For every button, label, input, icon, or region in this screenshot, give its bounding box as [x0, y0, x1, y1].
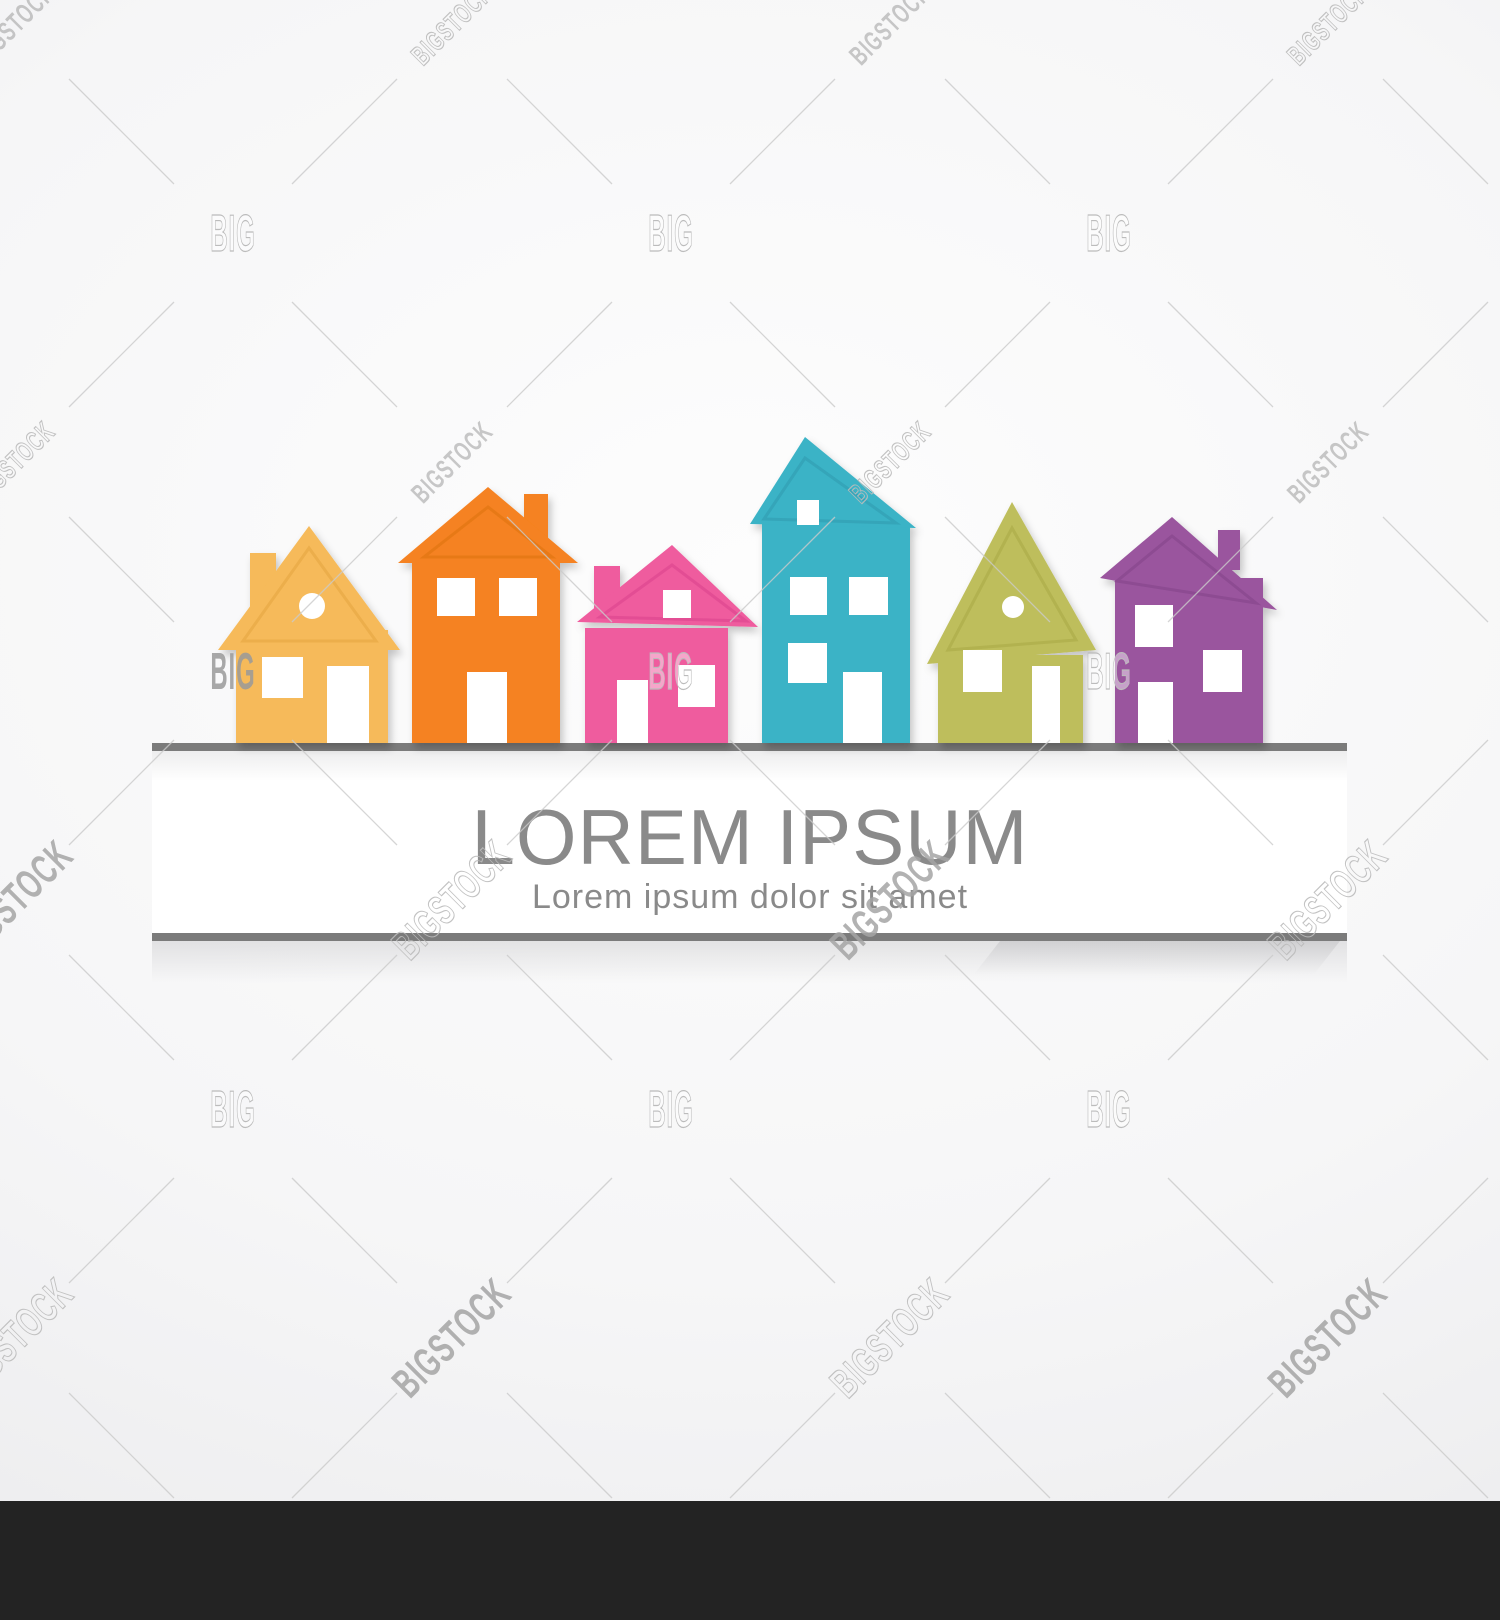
houses-illustration [0, 0, 1500, 1501]
orange-window-left [437, 578, 475, 616]
teal-door [843, 672, 882, 743]
house-pink [577, 545, 758, 743]
teal-roof [750, 437, 916, 528]
pink-window [678, 665, 715, 707]
teal-body [762, 524, 910, 743]
olive-gable-window [1002, 596, 1024, 618]
olive-window [963, 650, 1002, 692]
house-yellow [218, 526, 400, 743]
orange-window-right [499, 578, 537, 616]
page-title: LOREM IPSUM [0, 798, 1500, 876]
orange-roof [398, 487, 578, 563]
house-olive [927, 502, 1096, 743]
stock-image-preview: LOREM IPSUM Lorem ipsum dolor sit amet B… [0, 0, 1500, 1620]
footer-bar: BIGSTOCK Image ID: 91991060 bigstock.com [0, 1501, 1500, 1620]
house-teal [750, 437, 916, 743]
olive-body [938, 655, 1083, 743]
yellow-roof [218, 526, 400, 650]
purple-window-right [1203, 650, 1242, 692]
house-purple [1100, 517, 1277, 743]
yellow-door [327, 666, 369, 743]
yellow-window [262, 657, 303, 698]
teal-window-mid-left [790, 577, 827, 615]
olive-door [1032, 666, 1060, 743]
purple-door [1138, 682, 1173, 743]
teal-window-mid-right [849, 577, 888, 615]
house-orange [398, 487, 578, 743]
teal-gable-window [797, 500, 819, 525]
pink-gable-window [663, 590, 691, 618]
page-subtitle: Lorem ipsum dolor sit amet [0, 880, 1500, 914]
yellow-gable-window [299, 593, 325, 619]
orange-door [467, 672, 507, 743]
pink-door [617, 680, 648, 743]
purple-window-left [1135, 605, 1173, 647]
teal-window-low [788, 643, 827, 683]
